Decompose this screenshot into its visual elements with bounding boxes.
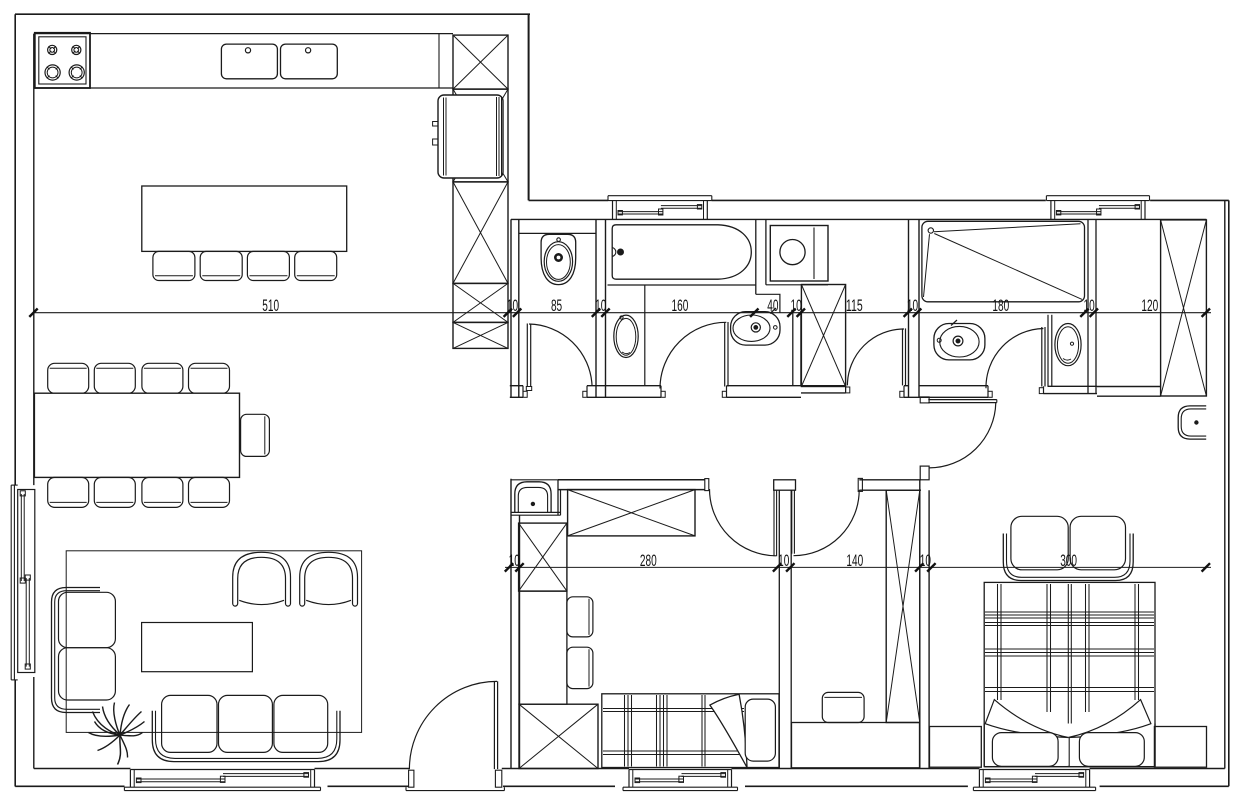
- svg-text:10: 10: [920, 551, 931, 570]
- svg-text:85: 85: [551, 296, 562, 315]
- svg-text:10: 10: [791, 296, 802, 315]
- svg-text:300: 300: [1060, 551, 1077, 570]
- svg-text:40: 40: [767, 296, 778, 315]
- svg-text:10: 10: [907, 296, 918, 315]
- svg-text:10: 10: [507, 296, 518, 315]
- svg-text:10: 10: [1084, 296, 1095, 315]
- svg-text:510: 510: [262, 296, 279, 315]
- svg-text:160: 160: [672, 296, 689, 315]
- svg-text:10: 10: [778, 551, 789, 570]
- svg-text:120: 120: [1141, 296, 1158, 315]
- svg-text:10: 10: [509, 551, 520, 570]
- svg-text:280: 280: [640, 551, 657, 570]
- svg-text:180: 180: [992, 296, 1009, 315]
- svg-text:140: 140: [846, 551, 863, 570]
- svg-text:115: 115: [846, 296, 863, 315]
- svg-text:10: 10: [595, 296, 606, 315]
